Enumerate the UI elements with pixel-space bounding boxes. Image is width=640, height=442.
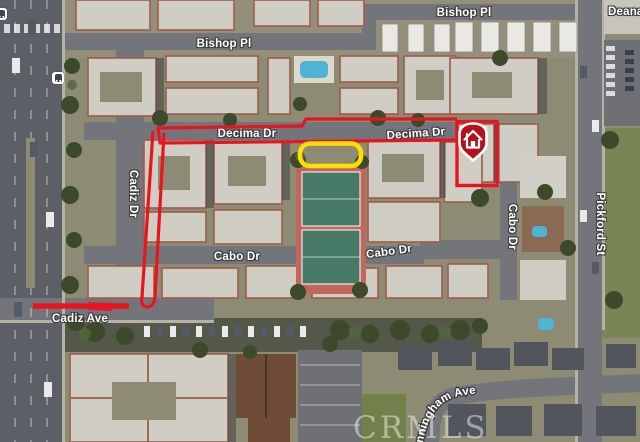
highlighted-building-outline [300,144,361,167]
listing-pin-icon: ® [460,124,488,161]
cadiz-ave-route-line-overlap [88,306,112,307]
cadiz-dr-route-outline [142,131,164,307]
annotation-layer: ® [0,0,640,442]
decima-dr-route-outline [158,119,457,143]
satellite-map-view: Bishop Pl Bishop Pl Deana Decima Dr Deci… [0,0,640,442]
pin-registered-mark: ® [484,125,488,132]
pin-house-door [471,141,475,148]
